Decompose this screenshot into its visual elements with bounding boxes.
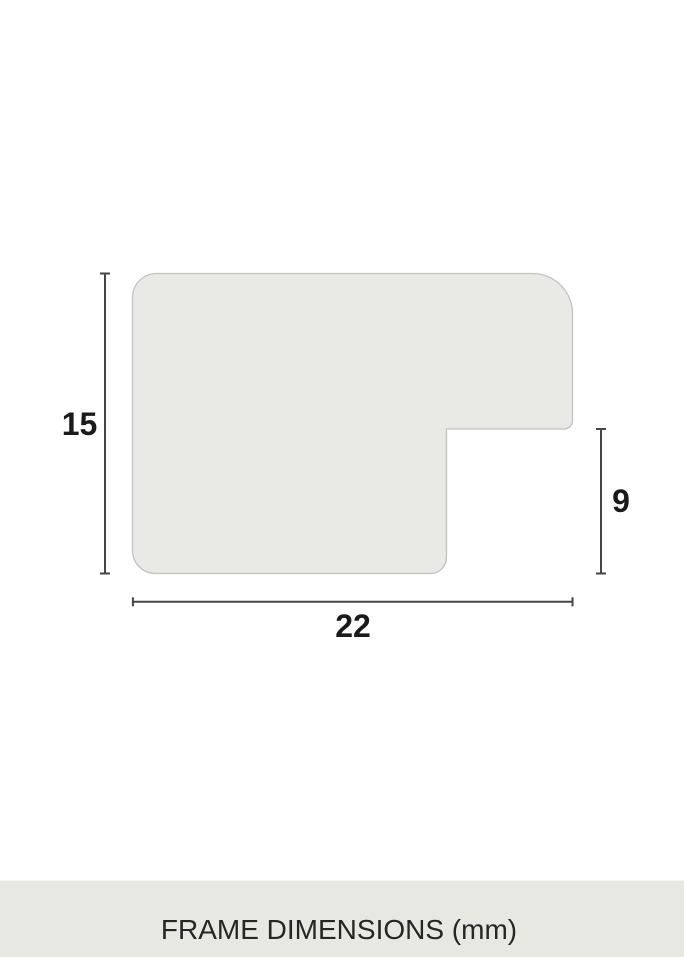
svg-text:15: 15 [62,406,98,442]
svg-text:22: 22 [335,608,371,644]
svg-text:FRAME DIMENSIONS (mm): FRAME DIMENSIONS (mm) [161,914,517,945]
svg-text:9: 9 [612,483,630,519]
